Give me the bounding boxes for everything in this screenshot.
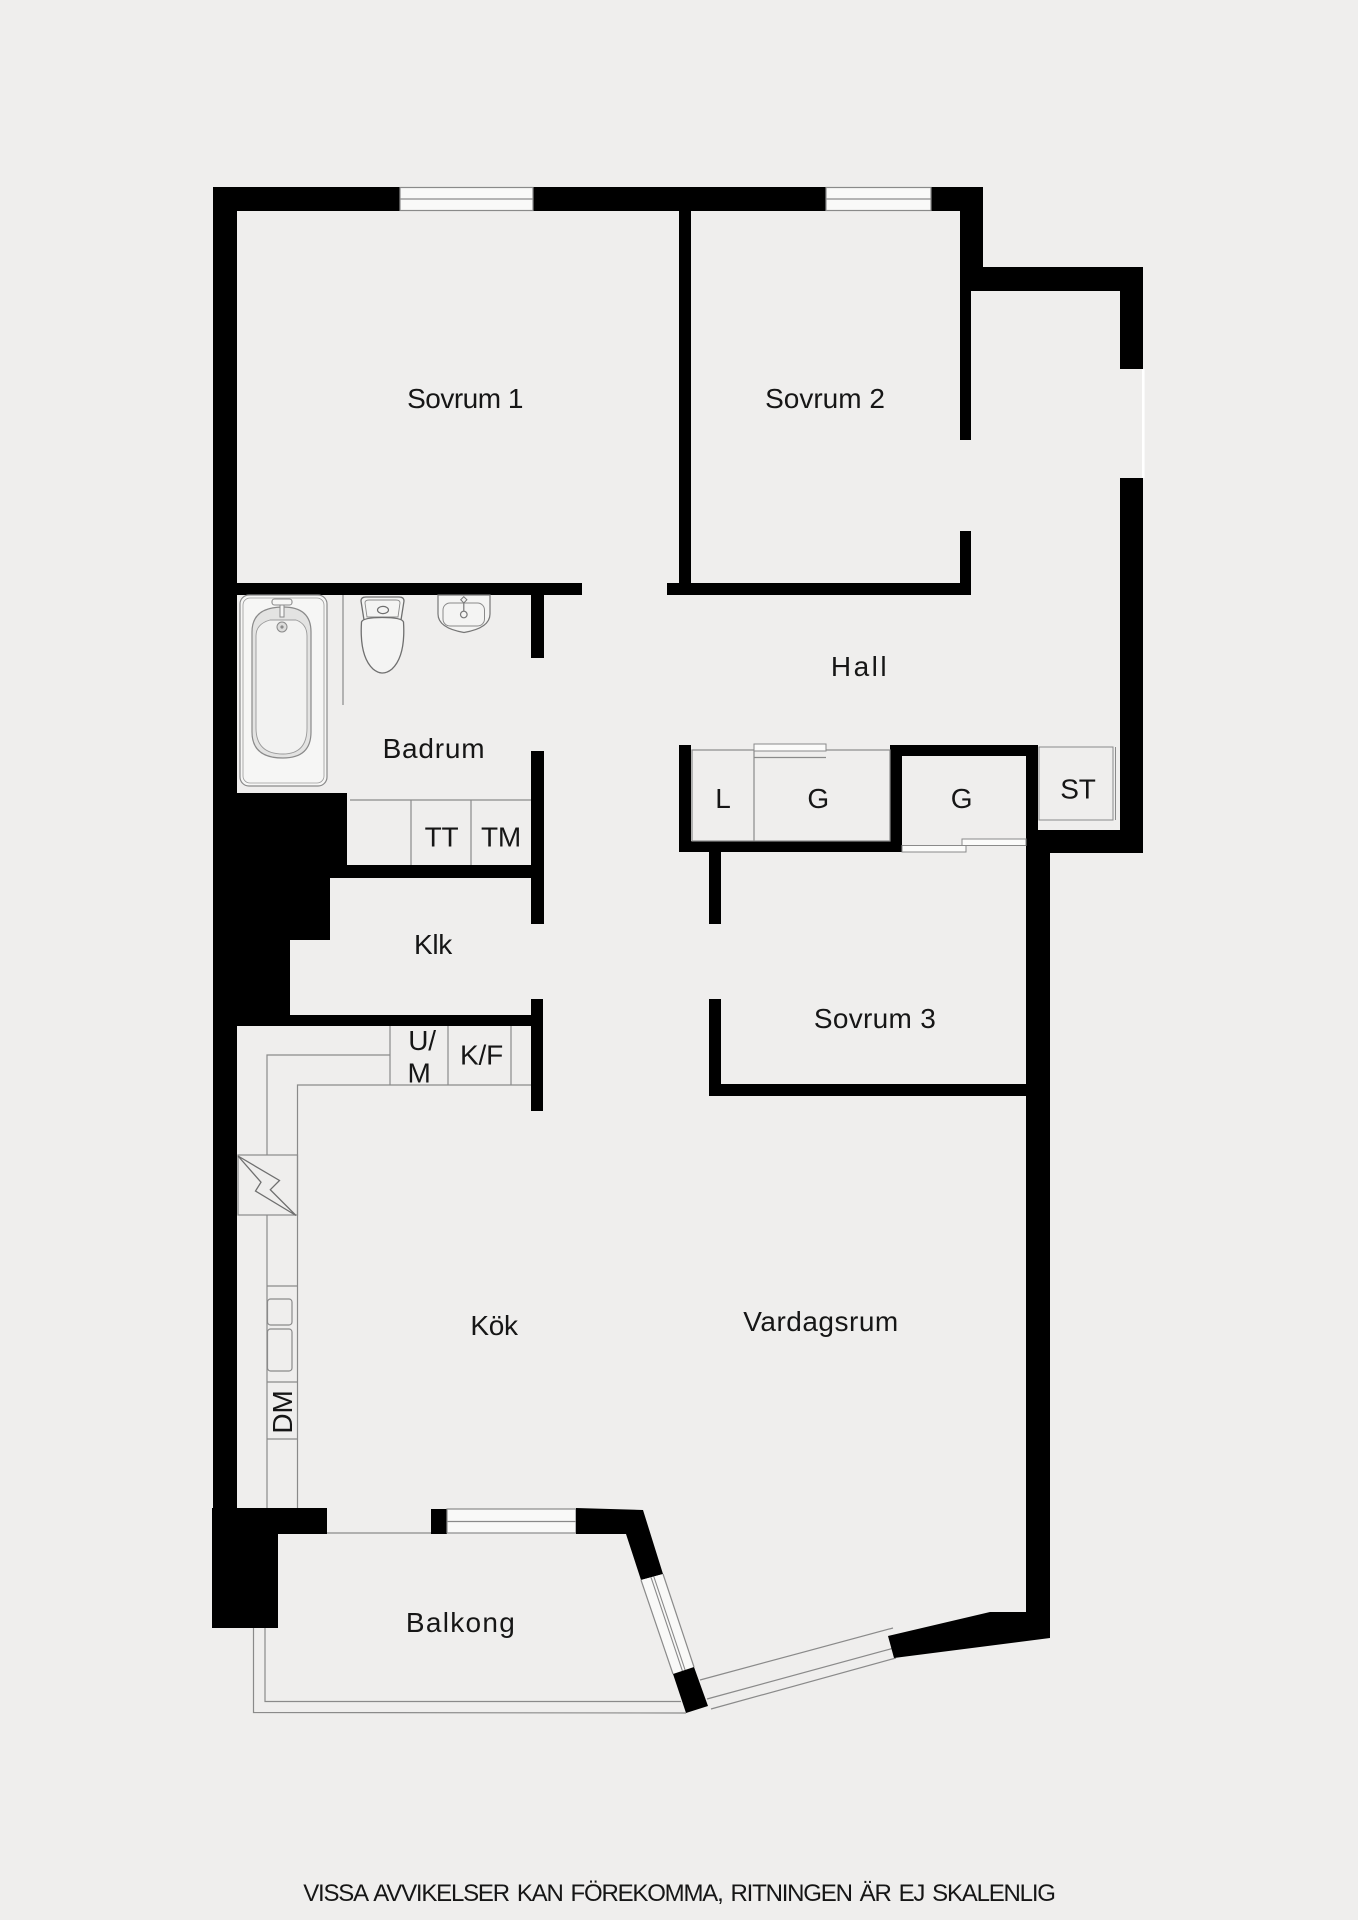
svg-text:Sovrum 3: Sovrum 3 (814, 1003, 936, 1034)
svg-text:Badrum: Badrum (383, 733, 486, 764)
svg-text:TT: TT (425, 822, 459, 853)
svg-text:U/: U/ (408, 1025, 436, 1056)
svg-text:K/F: K/F (460, 1040, 503, 1071)
svg-text:Sovrum 1: Sovrum 1 (407, 383, 523, 414)
svg-text:G: G (807, 783, 829, 814)
svg-text:DM: DM (267, 1390, 298, 1433)
svg-text:G: G (951, 783, 973, 814)
svg-text:ST: ST (1060, 774, 1095, 805)
svg-text:Klk: Klk (414, 929, 453, 960)
svg-text:M: M (407, 1058, 430, 1089)
svg-text:L: L (715, 783, 731, 814)
svg-text:Sovrum 2: Sovrum 2 (765, 383, 885, 414)
svg-text:TM: TM (481, 822, 521, 853)
svg-text:Hall: Hall (831, 651, 889, 682)
svg-text:Balkong: Balkong (406, 1607, 516, 1638)
svg-text:Vardagsrum: Vardagsrum (743, 1306, 898, 1337)
svg-text:Kök: Kök (470, 1310, 519, 1341)
svg-text:VISSA AVVIKELSER KAN FÖREKOMMA: VISSA AVVIKELSER KAN FÖREKOMMA, RITNINGE… (303, 1880, 1055, 1907)
